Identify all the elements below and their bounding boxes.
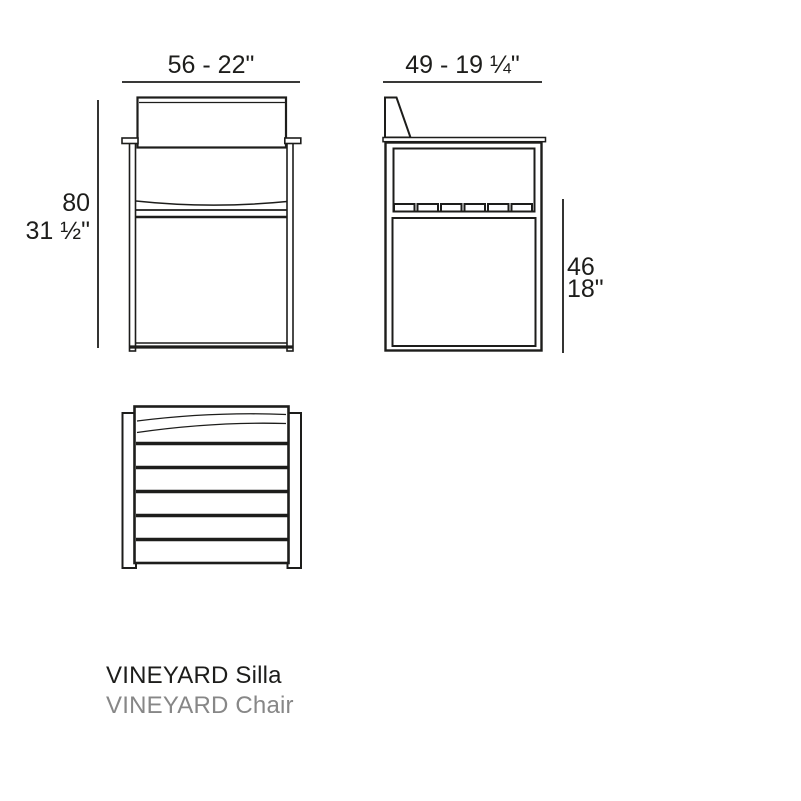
front-width-label: 56 - 22" <box>122 52 300 80</box>
front-right-armrest-cap <box>285 138 301 144</box>
product-title-es: VINEYARD Silla <box>106 662 282 690</box>
front-backrest <box>138 98 287 148</box>
spec-sheet-page: 56 - 22" 49 - 19 ¼" 80 31 ½" 46 18" VINE… <box>0 0 801 801</box>
side-armrest <box>383 138 546 142</box>
side-lower-panel <box>393 218 536 346</box>
front-seat-curve <box>136 201 287 205</box>
front-height-cm-label: 80 <box>20 190 90 218</box>
front-right-leg <box>287 140 293 351</box>
front-left-leg <box>130 140 136 351</box>
top-view <box>123 407 302 569</box>
front-height-in-label: 31 ½" <box>10 218 90 246</box>
side-view <box>383 82 563 353</box>
side-upper-panel <box>394 149 535 212</box>
side-backrest <box>385 98 411 138</box>
side-depth-label: 49 - 19 ¼" <box>383 52 542 80</box>
front-left-armrest-cap <box>122 138 138 144</box>
front-view <box>98 82 301 351</box>
product-title-en: VINEYARD Chair <box>106 692 294 720</box>
side-seat-height-in-label: 18" <box>567 276 604 304</box>
